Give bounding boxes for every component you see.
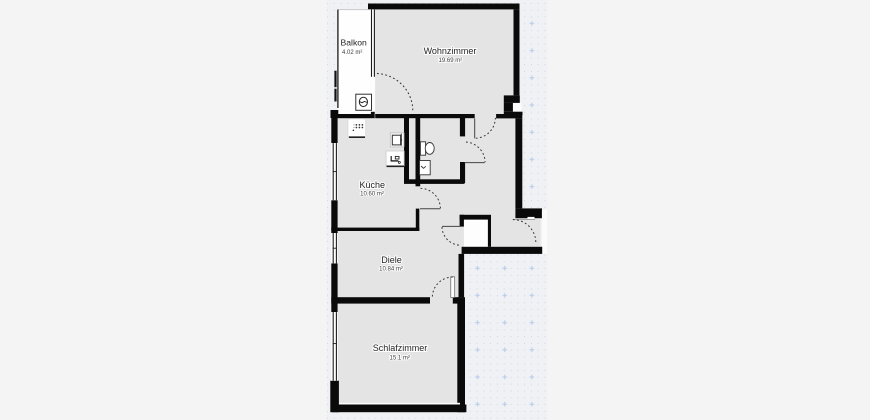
- svg-text:Diele: Diele: [381, 255, 402, 265]
- svg-text:19.69 m²: 19.69 m²: [439, 58, 463, 64]
- svg-text:15.1 m²: 15.1 m²: [390, 356, 410, 362]
- svg-text:4.02 m²: 4.02 m²: [342, 50, 362, 56]
- svg-text:10.60 m²: 10.60 m²: [360, 192, 384, 198]
- svg-text:Wohnzimmer: Wohnzimmer: [424, 46, 477, 56]
- svg-text:Küche: Küche: [360, 180, 386, 190]
- svg-text:Schlafzimmer: Schlafzimmer: [373, 343, 428, 353]
- svg-text:Balkon: Balkon: [341, 38, 367, 48]
- svg-text:10.84 m²: 10.84 m²: [379, 267, 403, 273]
